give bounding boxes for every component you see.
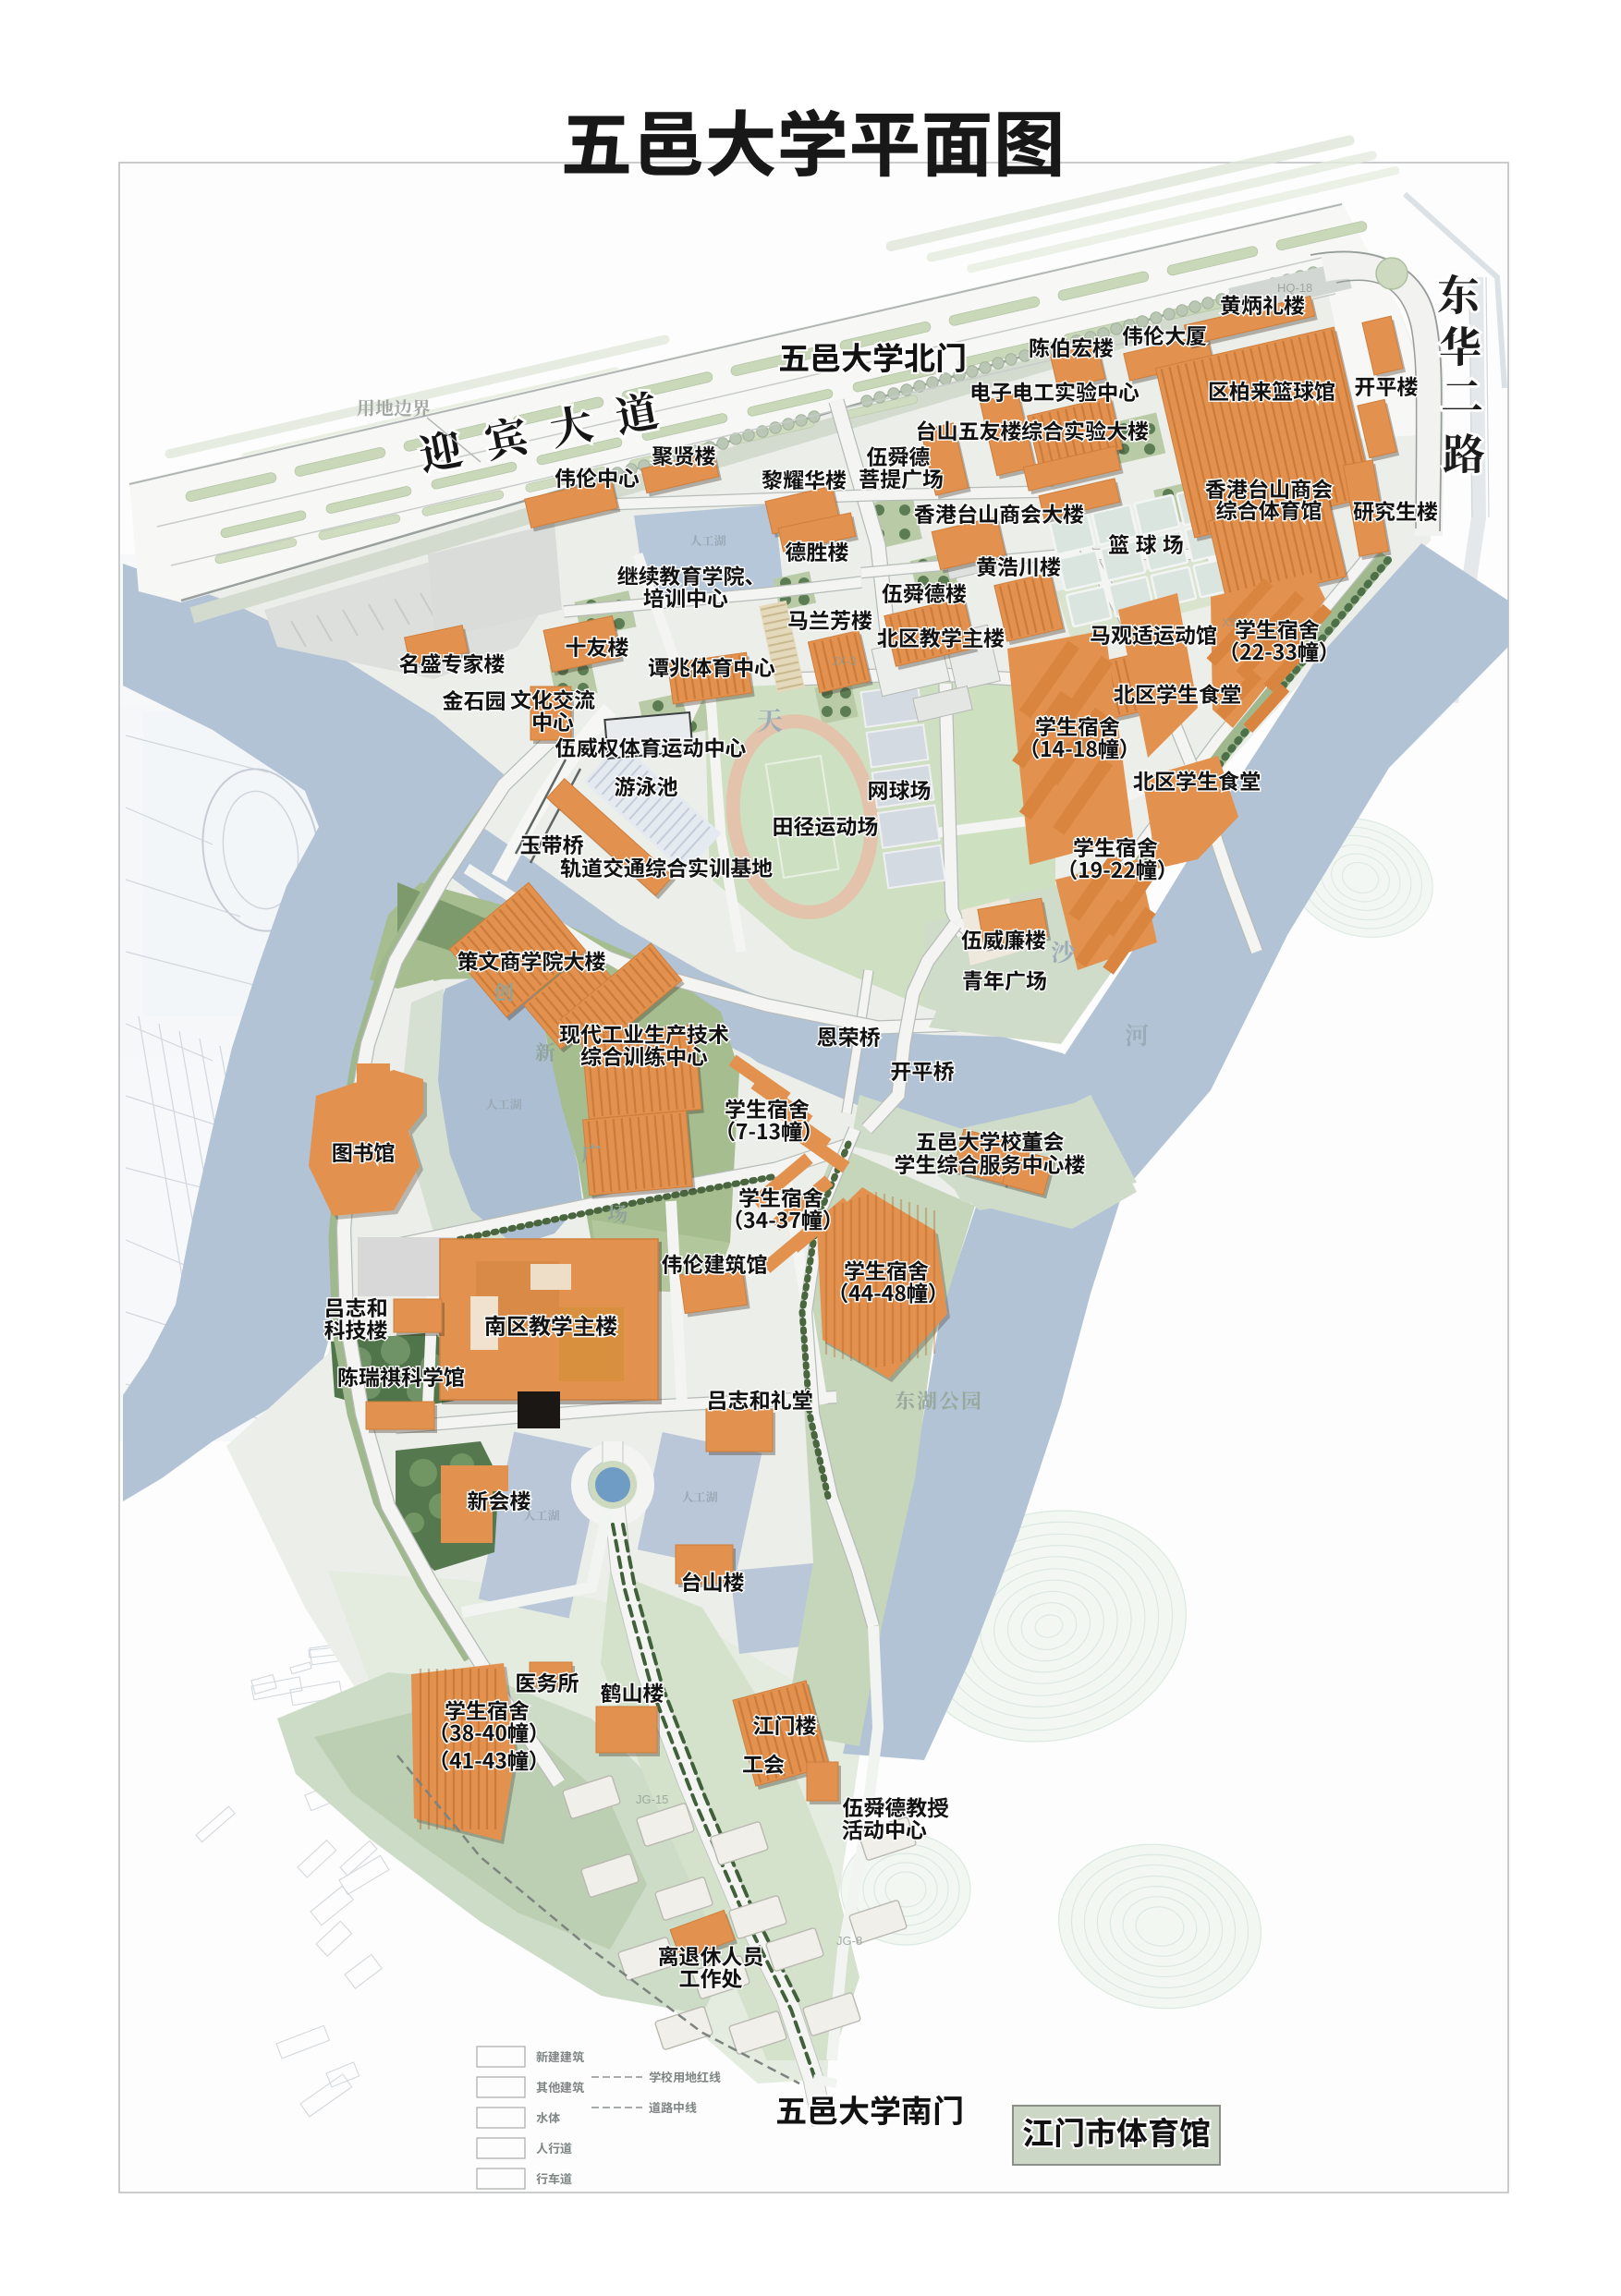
svg-text:研究生楼: 研究生楼 <box>1353 494 1438 526</box>
svg-text:图书馆: 图书馆 <box>332 1136 396 1167</box>
svg-text:人工湖: 人工湖 <box>523 1506 559 1524</box>
svg-text:（7-13幢）: （7-13幢） <box>714 1114 823 1146</box>
svg-text:陈瑞祺科学馆: 陈瑞祺科学馆 <box>337 1360 465 1391</box>
svg-text:新: 新 <box>535 1038 555 1066</box>
svg-text:五邑大学北门: 五邑大学北门 <box>778 334 967 379</box>
svg-text:用地边界: 用地边界 <box>357 394 431 420</box>
svg-text:区柏来篮球馆: 区柏来篮球馆 <box>1208 374 1335 406</box>
svg-text:新建建筑: 新建建筑 <box>536 2047 585 2065</box>
svg-text:广: 广 <box>581 1139 602 1168</box>
svg-text:五邑大学平面图: 五邑大学平面图 <box>561 89 1066 191</box>
svg-text:路: 路 <box>1443 421 1485 482</box>
svg-text:网球场: 网球场 <box>868 773 932 805</box>
svg-text:名盛专家楼: 名盛专家楼 <box>399 647 506 678</box>
svg-text:河: 河 <box>1125 1017 1149 1051</box>
svg-text:台山楼: 台山楼 <box>681 1565 745 1597</box>
svg-text:陈伯宏楼: 陈伯宏楼 <box>1029 331 1114 362</box>
svg-text:黄炳礼楼: 黄炳礼楼 <box>1220 288 1305 320</box>
svg-text:开平桥: 开平桥 <box>891 1054 955 1086</box>
svg-text:科技楼: 科技楼 <box>324 1313 388 1344</box>
svg-text:菩提广场: 菩提广场 <box>859 462 944 493</box>
svg-text:新会楼: 新会楼 <box>468 1484 531 1515</box>
svg-text:沙: 沙 <box>1051 934 1075 968</box>
svg-text:伟伦大厦: 伟伦大厦 <box>1122 319 1207 350</box>
svg-text:游泳池: 游泳池 <box>615 770 678 801</box>
svg-text:鹤山楼: 鹤山楼 <box>601 1676 664 1707</box>
svg-text:水体: 水体 <box>536 2108 560 2126</box>
svg-text:开平楼: 开平楼 <box>1355 370 1419 401</box>
svg-text:黄浩川楼: 黄浩川楼 <box>976 550 1061 581</box>
svg-text:篮 球 场: 篮 球 场 <box>1108 528 1184 559</box>
svg-text:（22-33幢）: （22-33幢） <box>1218 635 1340 666</box>
svg-text:人工湖: 人工湖 <box>689 531 725 549</box>
svg-text:青年广场: 青年广场 <box>962 964 1047 995</box>
svg-text:综合实验大楼: 综合实验大楼 <box>1021 414 1149 445</box>
svg-text:恩荣桥: 恩荣桥 <box>817 1020 881 1051</box>
svg-text:江门市体育馆: 江门市体育馆 <box>1022 2108 1211 2154</box>
svg-text:道路中线: 道路中线 <box>649 2098 697 2116</box>
svg-text:马观适运动馆: 马观适运动馆 <box>1090 618 1217 650</box>
svg-text:学生综合服务中心楼: 学生综合服务中心楼 <box>895 1148 1086 1179</box>
svg-text:JG-15: JG-15 <box>636 1792 668 1806</box>
svg-text:（34-37幢）: （34-37幢） <box>722 1203 844 1234</box>
svg-text:策文商学院大楼: 策文商学院大楼 <box>457 944 606 976</box>
svg-text:江门楼: 江门楼 <box>753 1708 817 1740</box>
svg-text:北区学生食堂: 北区学生食堂 <box>1114 677 1241 709</box>
svg-text:人工湖: 人工湖 <box>681 1488 717 1505</box>
svg-text:马兰芳楼: 马兰芳楼 <box>787 603 872 635</box>
svg-text:活动中心: 活动中心 <box>842 1813 927 1844</box>
svg-text:伍威廉楼: 伍威廉楼 <box>961 923 1046 954</box>
svg-text:北区教学主楼: 北区教学主楼 <box>877 621 1005 652</box>
svg-text:行车道: 行车道 <box>536 2169 572 2187</box>
svg-text:（19-22幢）: （19-22幢） <box>1056 853 1178 884</box>
svg-text:人工湖: 人工湖 <box>485 1095 521 1112</box>
svg-text:（41-43幢）: （41-43幢） <box>428 1743 550 1775</box>
svg-text:伟伦建筑馆: 伟伦建筑馆 <box>662 1247 768 1279</box>
svg-text:（38-40幢）: （38-40幢） <box>428 1716 550 1747</box>
svg-text:东湖公园: 东湖公园 <box>895 1386 983 1415</box>
svg-text:聚贤楼: 聚贤楼 <box>652 439 716 470</box>
svg-text:场: 场 <box>607 1199 628 1228</box>
svg-text:黎耀华楼: 黎耀华楼 <box>762 463 847 494</box>
svg-text:JX-3: JX-3 <box>832 654 857 668</box>
svg-text:（14-18幢）: （14-18幢） <box>1018 732 1140 763</box>
svg-text:台山五友楼: 台山五友楼 <box>916 414 1022 445</box>
svg-text:创: 创 <box>494 978 514 1006</box>
svg-text:轨道交通综合实训基地: 轨道交通综合实训基地 <box>560 851 773 882</box>
svg-text:五邑大学南门: 五邑大学南门 <box>775 2086 964 2132</box>
svg-text:其他建筑: 其他建筑 <box>536 2078 585 2096</box>
svg-text:天: 天 <box>757 701 783 738</box>
svg-text:培训中心: 培训中心 <box>643 581 728 613</box>
svg-text:伍舜德楼: 伍舜德楼 <box>882 577 967 608</box>
svg-text:综合体育馆: 综合体育馆 <box>1216 493 1322 525</box>
svg-text:谭兆体育中心: 谭兆体育中心 <box>648 650 775 682</box>
svg-text:香港台山商会大楼: 香港台山商会大楼 <box>914 497 1084 528</box>
svg-text:田径运动场: 田径运动场 <box>773 809 879 841</box>
svg-text:德胜楼: 德胜楼 <box>786 535 849 566</box>
svg-text:吕志和礼堂: 吕志和礼堂 <box>707 1383 813 1415</box>
svg-text:电子电工实验中心: 电子电工实验中心 <box>969 375 1140 407</box>
svg-text:二: 二 <box>1441 364 1483 425</box>
svg-text:伍威权体育运动中心: 伍威权体育运动中心 <box>555 731 747 762</box>
svg-text:伟伦中心: 伟伦中心 <box>555 461 640 492</box>
svg-text:医务所: 医务所 <box>516 1666 579 1697</box>
svg-text:工作处: 工作处 <box>679 1962 743 1993</box>
svg-text:十友楼: 十友楼 <box>566 630 629 662</box>
svg-text:金石园: 金石园 <box>443 684 506 715</box>
svg-text:（44-48幢）: （44-48幢） <box>827 1276 949 1307</box>
svg-text:综合训练中心: 综合训练中心 <box>580 1039 708 1071</box>
svg-text:JG-8: JG-8 <box>836 1934 862 1948</box>
svg-text:学校用地红线: 学校用地红线 <box>649 2068 721 2085</box>
svg-text:南区教学主楼: 南区教学主楼 <box>484 1308 617 1341</box>
svg-text:北区学生食堂: 北区学生食堂 <box>1133 764 1261 796</box>
svg-text:工会: 工会 <box>742 1747 785 1779</box>
svg-text:人行道: 人行道 <box>536 2139 572 2156</box>
